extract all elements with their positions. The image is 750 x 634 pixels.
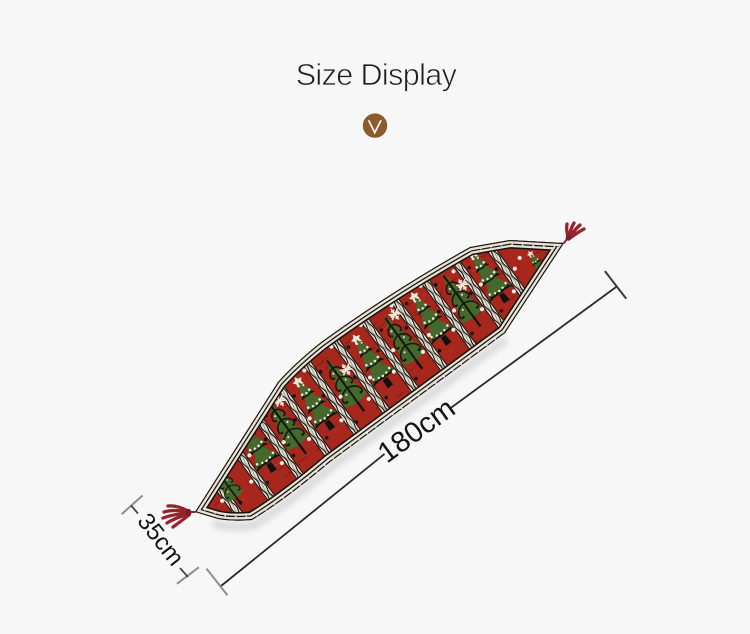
svg-text:Size Display: Size Display: [296, 58, 458, 92]
